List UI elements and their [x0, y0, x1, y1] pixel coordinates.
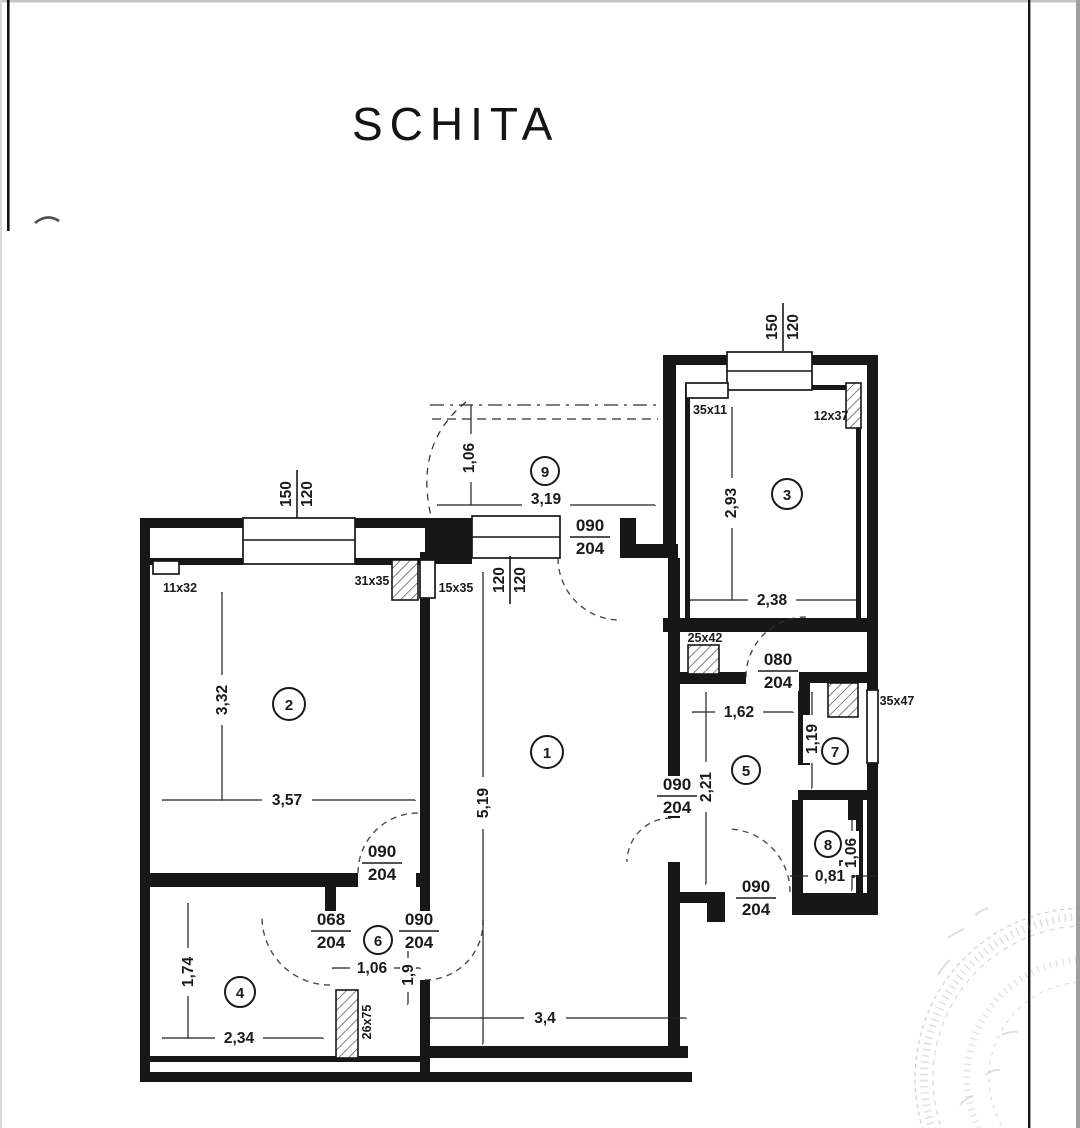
dim-label: 2,93 — [723, 488, 740, 519]
vent-box-35x11 — [686, 383, 728, 398]
column-25x42 — [688, 645, 719, 674]
window-height: 120 — [512, 567, 529, 593]
door-label-080: 080 204 — [757, 650, 799, 692]
dim-label: 3,32 — [214, 685, 231, 715]
room-number: 1 — [543, 745, 551, 762]
dim-room1-height: 5,19 — [473, 572, 492, 1044]
wall-niche-35x47 — [867, 690, 878, 763]
dim-hall5-height: 2,21 — [696, 692, 715, 884]
room-number: 9 — [541, 464, 549, 481]
label-12x37: 12x37 — [814, 409, 849, 423]
door-label-balcony: 090 204 — [570, 516, 610, 558]
door-width: 080 — [764, 650, 792, 669]
window-height: 120 — [299, 481, 316, 507]
margin-rule-left — [7, 0, 10, 231]
page-edge-left — [0, 0, 2, 1128]
dim-room4-height: 1,74 — [178, 903, 197, 1038]
floorplan-canvas: SCHITA — [0, 0, 1080, 1128]
dim-label: 3,57 — [272, 792, 302, 809]
windows — [153, 352, 878, 877]
dim-label: 2,34 — [224, 1030, 255, 1047]
door-height: 204 — [317, 933, 346, 952]
room-marker-2: 2 — [273, 688, 305, 720]
label-26x75: 26x75 — [360, 1005, 374, 1040]
door-height: 204 — [764, 673, 793, 692]
door-width: 068 — [317, 910, 345, 929]
dim-room4-width: 2,34 — [162, 1028, 323, 1047]
dim-label: 1,06 — [357, 960, 388, 977]
label-25x42: 25x42 — [688, 631, 723, 645]
room-marker-7: 7 — [822, 738, 848, 764]
room-number: 5 — [742, 763, 750, 780]
window-width: 120 — [491, 567, 508, 593]
window-width: 150 — [764, 314, 781, 340]
door-arc-room1-hall5 — [627, 818, 671, 862]
door-width: 090 — [576, 516, 604, 535]
room-marker-4: 4 — [225, 977, 255, 1007]
room-number: 8 — [824, 837, 832, 854]
window-label-room2: 150 120 — [278, 470, 316, 518]
room-number: 6 — [374, 933, 382, 950]
hatched-columns — [336, 383, 861, 1058]
column-box-11x32 — [153, 561, 179, 574]
window-width: 150 — [278, 481, 295, 507]
margin-rule-right — [1028, 0, 1030, 1128]
column-31x35 — [392, 560, 418, 600]
walls — [140, 355, 878, 1082]
door-height: 204 — [663, 798, 692, 817]
window-label-balcony: 120 120 — [491, 556, 529, 604]
column-26x75 — [336, 990, 358, 1058]
dim-label: 3,4 — [534, 1010, 556, 1027]
dim-balcony-width: 3,19 — [437, 489, 655, 508]
page-title: SCHITA — [352, 98, 559, 150]
window-label-room3: 150 120 — [764, 303, 802, 351]
stamp — [915, 908, 1080, 1128]
room-number: 4 — [236, 985, 245, 1002]
dim-label: 1,06 — [843, 838, 860, 869]
label-11x32: 11x32 — [163, 581, 197, 595]
dim-label: 2,38 — [757, 592, 788, 609]
room-number: 3 — [783, 487, 791, 504]
door-label-room1-hall5: 090 204 — [656, 775, 698, 817]
window-room3 — [727, 352, 812, 390]
room-number: 7 — [831, 744, 839, 761]
label-15x35: 15x35 — [439, 581, 474, 595]
dim-label: 1,19 — [804, 724, 821, 755]
page-edge-right — [1076, 0, 1080, 1128]
page-edge-top — [0, 0, 1080, 3]
door-width: 090 — [368, 842, 396, 861]
door-height: 204 — [368, 865, 397, 884]
dim-room3-width: 2,38 — [690, 590, 856, 609]
label-35x47: 35x47 — [880, 694, 915, 708]
dim-label: 3,19 — [531, 491, 562, 508]
window-room2 — [243, 518, 355, 564]
dim-room2-width: 3,57 — [162, 790, 415, 809]
dim-label: 1,9 — [400, 964, 417, 986]
dim-label: 2,21 — [698, 772, 715, 803]
door-label-entry: 090 204 — [736, 877, 776, 919]
dim-label: 1,74 — [180, 957, 197, 988]
room-marker-8: 8 — [815, 831, 841, 857]
room-marker-3: 3 — [772, 479, 802, 509]
scanned-floorplan-page: { "title": "SCHITA", "plan": { "rooms": … — [0, 0, 1080, 1128]
door-height: 204 — [742, 900, 771, 919]
dim-label: 1,62 — [724, 704, 754, 721]
dim-label: 0,81 — [815, 868, 846, 885]
door-width: 090 — [663, 775, 691, 794]
door-height: 204 — [576, 539, 605, 558]
door-arc-balcony — [558, 558, 620, 620]
dim-room2-height: 3,32 — [212, 592, 231, 800]
dim-room1-width: 3,4 — [430, 1008, 686, 1027]
dim-room3-height: 2,93 — [721, 407, 740, 600]
room-number: 2 — [285, 697, 293, 714]
dim-hall5-width: 1,62 — [692, 702, 793, 721]
pen-mark — [35, 217, 59, 223]
dim-label: 1,06 — [461, 443, 478, 474]
label-31x35: 31x35 — [355, 574, 390, 588]
dimensions: 3,57 3,32 5,19 3,4 — [162, 405, 876, 1047]
door-label-hall6-left: 068 204 — [310, 910, 352, 952]
room-marker-1: 1 — [531, 736, 563, 768]
door-label-room2: 090 204 — [362, 842, 402, 884]
window-height: 120 — [785, 314, 802, 340]
door-width: 090 — [742, 877, 770, 896]
label-35x11: 35x11 — [693, 403, 727, 417]
room-marker-9: 9 — [531, 457, 559, 485]
door-label-hall6-right: 090 204 — [398, 910, 440, 952]
dim-balcony-height: 1,06 — [459, 405, 478, 505]
door-height: 204 — [405, 933, 434, 952]
room-marker-5: 5 — [732, 756, 760, 784]
door-width: 090 — [405, 910, 433, 929]
column-box-15x35 — [420, 560, 435, 598]
shower-room7 — [828, 683, 858, 717]
window-balcony — [472, 516, 560, 558]
floor-plan: 3,57 3,32 5,19 3,4 — [140, 303, 914, 1082]
dim-label: 5,19 — [475, 788, 492, 819]
room-marker-6: 6 — [364, 926, 392, 954]
